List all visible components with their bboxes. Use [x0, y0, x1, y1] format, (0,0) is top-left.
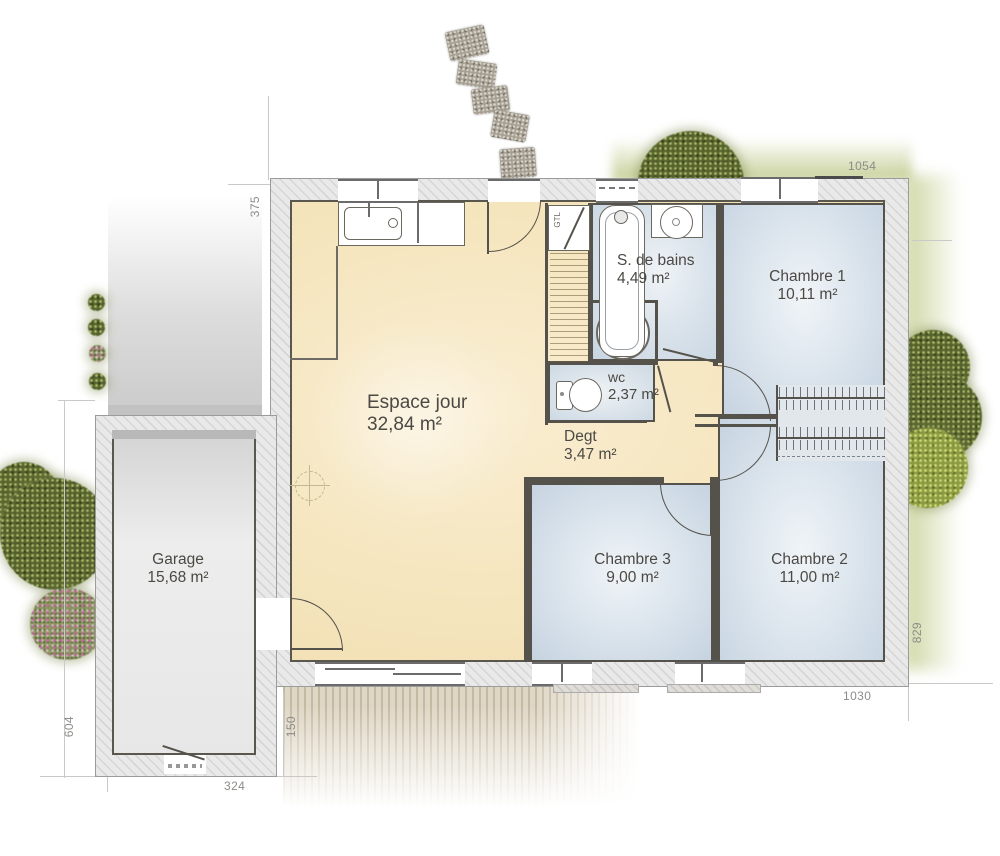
garage-house-door-opening: [256, 598, 290, 650]
garage-door: [112, 430, 256, 439]
dimension-label-bottom-right: 1030: [843, 689, 871, 703]
wall-chambre3-left: [524, 480, 530, 662]
kitchen-faucet: [388, 218, 398, 228]
chambre3-window-sill: [553, 684, 639, 693]
guide-line: [908, 683, 909, 721]
stepping-stone-2: [455, 58, 497, 89]
front-door-opening: [488, 179, 540, 202]
stepping-stone-1: [444, 24, 489, 62]
closet-hanging-rail: [550, 252, 588, 362]
room-area: 3,47 m²: [564, 446, 617, 464]
wardrobe-front-dashed: [777, 456, 885, 457]
label-degt: Degt 3,47 m²: [564, 428, 617, 465]
wardrobe-hangers-4: [779, 440, 885, 450]
label-garage: Garage 15,68 m²: [130, 551, 226, 588]
garage-house-door-leaf: [290, 648, 342, 650]
stepping-stone-5: [499, 147, 537, 179]
chambre1-window-divider: [779, 179, 781, 199]
wardrobe-rail-1: [777, 397, 885, 399]
driveway-threshold: [108, 405, 262, 415]
chambre2-window: [675, 662, 745, 686]
driveway: [108, 196, 262, 415]
wardrobe-hangers-1: [779, 387, 885, 397]
wall-chambre3-chambre2: [713, 483, 718, 662]
guide-line: [905, 683, 993, 684]
chambre2-window-sill: [667, 684, 761, 693]
room-area: 9,00 m²: [580, 569, 685, 587]
label-sdb: S. de bains 4,49 m²: [617, 252, 695, 289]
garage-floor: [112, 430, 256, 755]
wardrobe-hangers-2: [779, 400, 885, 410]
toilet-bowl: [569, 378, 602, 412]
bathroom-high-window: [596, 179, 638, 203]
wall-bathroom-chambre1: [718, 203, 722, 363]
stepping-stone-4: [490, 109, 530, 143]
room-name: Degt: [564, 428, 617, 446]
toilet-button: [560, 392, 564, 396]
small-bush-3: [89, 345, 106, 362]
washbasin-drain: [672, 218, 680, 226]
kitchen-zone-line-v: [336, 246, 338, 359]
kitchen-counter-divider: [417, 203, 419, 243]
wall-heater-nook-right: [655, 303, 658, 365]
room-name: S. de bains: [617, 252, 695, 270]
dimension-label-left-top: 375: [248, 196, 262, 238]
room-name: Chambre 1: [755, 268, 860, 286]
room-area: 4,49 m²: [617, 270, 695, 288]
room-area: 15,68 m²: [130, 569, 226, 587]
small-bush-1: [88, 294, 105, 311]
label-wc: wc 2,37 m²: [608, 369, 659, 403]
dimension-label-right: 829: [910, 622, 924, 664]
guide-line: [228, 184, 270, 185]
dimension-tick-top: [815, 176, 863, 179]
chambre2-window-divider: [701, 664, 703, 682]
label-chambre2: Chambre 2 11,00 m²: [757, 551, 862, 588]
guide-line: [912, 240, 952, 241]
wall-chambre3-top: [524, 477, 664, 483]
ceiling-light-symbol: [295, 471, 325, 501]
room-name: Chambre 2: [757, 551, 862, 569]
label-chambre1: Chambre 1 10,11 m²: [755, 268, 860, 305]
room-area: 11,00 m²: [757, 569, 862, 587]
wall-wc-bottom: [545, 420, 647, 423]
flower-bush: [30, 588, 105, 660]
chambre3-window-divider: [561, 664, 563, 682]
tree-left: [0, 478, 110, 590]
guide-line: [268, 96, 269, 180]
dimension-label-terrace: 150: [284, 716, 298, 758]
dimension-label-top: 1054: [848, 159, 876, 173]
room-name: Chambre 3: [580, 551, 685, 569]
guide-line: [58, 400, 95, 401]
kitchen-zone-line-h: [290, 358, 338, 360]
wardrobe-rail-2: [777, 437, 885, 439]
guide-line: [107, 776, 108, 792]
room-area: 32,84 m²: [367, 414, 467, 436]
kitchen-window-divider: [377, 181, 379, 199]
label-espace-jour: Espace jour 32,84 m²: [367, 392, 467, 437]
ceiling-light-cross-v: [309, 465, 310, 506]
terrace-fade: [283, 687, 643, 812]
wardrobe-hangers-3: [779, 427, 885, 437]
small-bush-4: [89, 373, 106, 390]
bay-window-slide-1: [325, 668, 395, 670]
floor-plan: GTL BEC: [0, 0, 1000, 856]
guide-line: [275, 776, 317, 777]
small-bush-2: [88, 319, 105, 336]
label-chambre3: Chambre 3 9,00 m²: [580, 551, 685, 588]
kitchen-faucet-spout: [368, 203, 370, 217]
technical-duct-label: GTL: [553, 212, 565, 244]
bathtub-faucet: [614, 210, 628, 224]
room-name: Garage: [130, 551, 226, 569]
room-name: Espace jour: [367, 392, 467, 414]
dimension-label-garage-left: 604: [62, 716, 76, 758]
bay-window-slide-2: [393, 673, 461, 675]
dimension-label-garage-bottom: 324: [224, 779, 245, 793]
bathroom-high-window-dash: [599, 187, 635, 189]
room-name: wc: [608, 369, 659, 386]
garage-side-door-threshold: [168, 764, 202, 768]
room-area: 2,37 m²: [608, 386, 659, 404]
room-area: 10,11 m²: [755, 286, 860, 304]
